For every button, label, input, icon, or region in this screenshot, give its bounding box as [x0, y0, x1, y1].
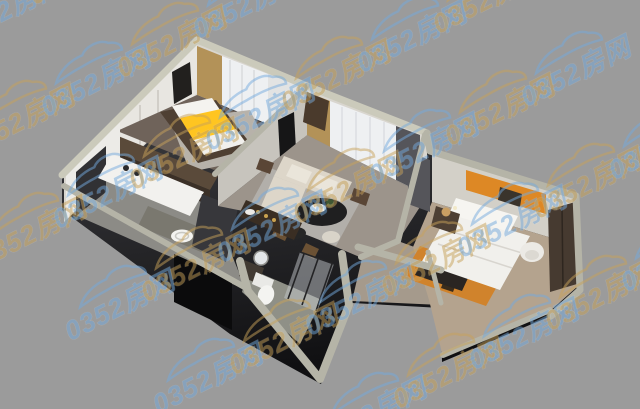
- armchair-seat: [525, 250, 539, 260]
- table-lamp: [453, 206, 457, 210]
- floorplan-render: 0352房网0352房网0352房网0352房网0352房网0352房网0352…: [0, 0, 640, 409]
- teddy-bear: [442, 208, 451, 217]
- bedroom-curtain-tan: [197, 46, 222, 105]
- floorplan-scene: 0352房网0352房网0352房网0352房网0352房网0352房网0352…: [0, 0, 640, 409]
- pouf: [322, 231, 340, 243]
- wardrobe-seam: [562, 206, 563, 288]
